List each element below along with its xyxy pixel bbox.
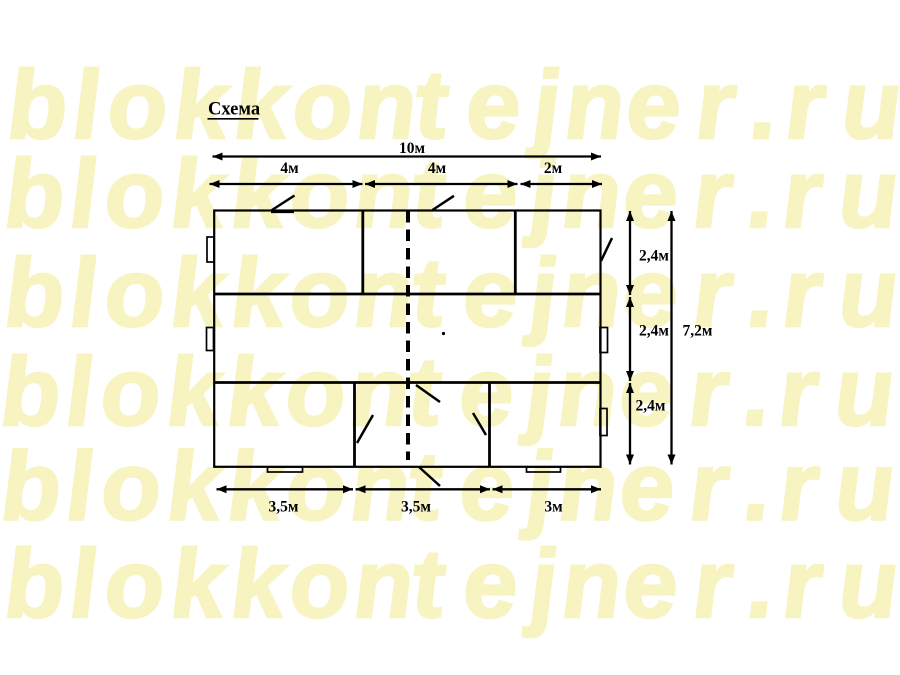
svg-text:3м: 3м [544, 499, 563, 516]
svg-text:4м: 4м [428, 160, 447, 177]
svg-text:7,2м: 7,2м [683, 323, 713, 340]
svg-text:3,5м: 3,5м [269, 499, 299, 516]
svg-text:2,4м: 2,4м [636, 398, 666, 415]
svg-text:3,5м: 3,5м [401, 499, 431, 516]
svg-text:blokkontejner.ru: blokkontejner.ru [0, 238, 900, 347]
svg-text:10м: 10м [399, 140, 426, 157]
svg-text:blokkontejner.ru: blokkontejner.ru [0, 337, 897, 446]
svg-text:2,4м: 2,4м [639, 248, 669, 265]
svg-text:blokkontejner.ru: blokkontejner.ru [0, 529, 900, 638]
svg-text:blokkontejner.ru: blokkontejner.ru [0, 432, 898, 541]
svg-text:2,4м: 2,4м [639, 323, 669, 340]
svg-text:2м: 2м [544, 160, 563, 177]
svg-text:4м: 4м [280, 160, 299, 177]
svg-text:Схема: Схема [208, 100, 260, 120]
